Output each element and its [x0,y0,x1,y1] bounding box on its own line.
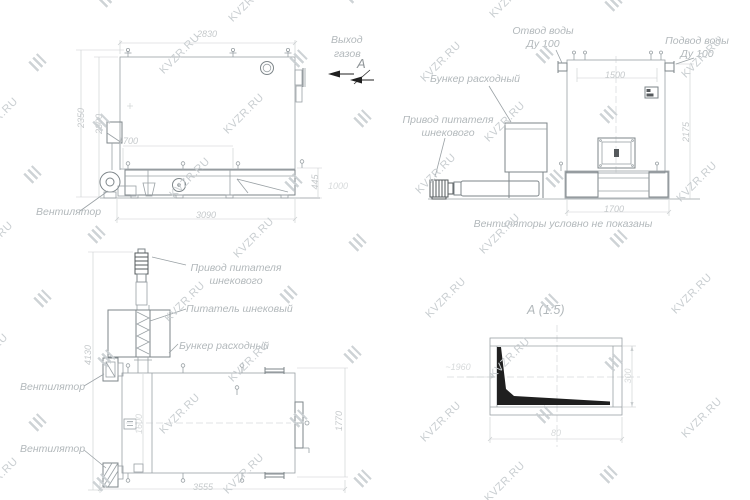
plan-dim-inner-height: 1600 [134,404,144,444]
side-dim-top-width: 2830 [185,29,229,39]
detail-dim-length: ~1960 [438,362,478,372]
water-supply-label-line2: Ду 100 [662,48,732,60]
side-dim-left-inner: 2300 [94,104,104,144]
front-feeder-drive-label-line1: Привод питателя [400,114,496,126]
plan-dim-left-height: 4130 [83,335,93,375]
drawing-page: Вентилятор Выход газов А 2830 2350 2300 … [0,0,750,500]
plan-hopper-label: Бункер расходный [179,340,269,352]
water-outlet-label-line2: Ду 100 [507,38,579,50]
plan-screw-feeder-label: Питатель шнековый [186,303,293,315]
side-dim-bottom-width: 3090 [184,210,228,220]
front-dim-bottom-width: 1700 [592,204,636,214]
plan-fan-bottom-label: Вентилятор [20,443,85,455]
detail-dim-height: 300 [623,361,633,391]
plan-dim-bottom-width: 3555 [181,482,225,492]
side-dim-right-height: 445 [310,167,320,197]
water-outlet-label-line1: Отвод воды [507,25,579,37]
detail-title: А (1:5) [527,304,565,316]
front-dim-top-width: 1500 [593,70,637,80]
front-dim-right-height: 2175 [681,112,691,152]
water-supply-label-line1: Подвод воды [662,35,732,47]
gas-outlet-label-line1: Выход [331,34,363,46]
view-arrow-label: А [357,58,366,70]
fans-note-label: Вентиляторы условно не показаны [468,218,658,230]
side-dim-right-offset: 1000 [320,181,356,191]
labels-layer: Вентилятор Выход газов А 2830 2350 2300 … [0,0,750,500]
plan-feeder-drive-label-line1: Привод питателя [187,262,285,274]
front-feeder-drive-label-line2: шнекового [400,127,496,139]
detail-dim-bottom-width: 80 [538,428,574,438]
front-hopper-label: Бункер расходный [430,73,520,85]
side-fan-label: Вентилятор [36,206,101,218]
plan-feeder-drive-label-line2: шнекового [187,275,285,287]
side-dim-left-outer: 2350 [76,98,86,138]
side-dim-inner-width: 1700 [106,136,150,146]
plan-fan-top-label: Вентилятор [20,381,85,393]
plan-dim-right-height: 1770 [334,401,344,441]
